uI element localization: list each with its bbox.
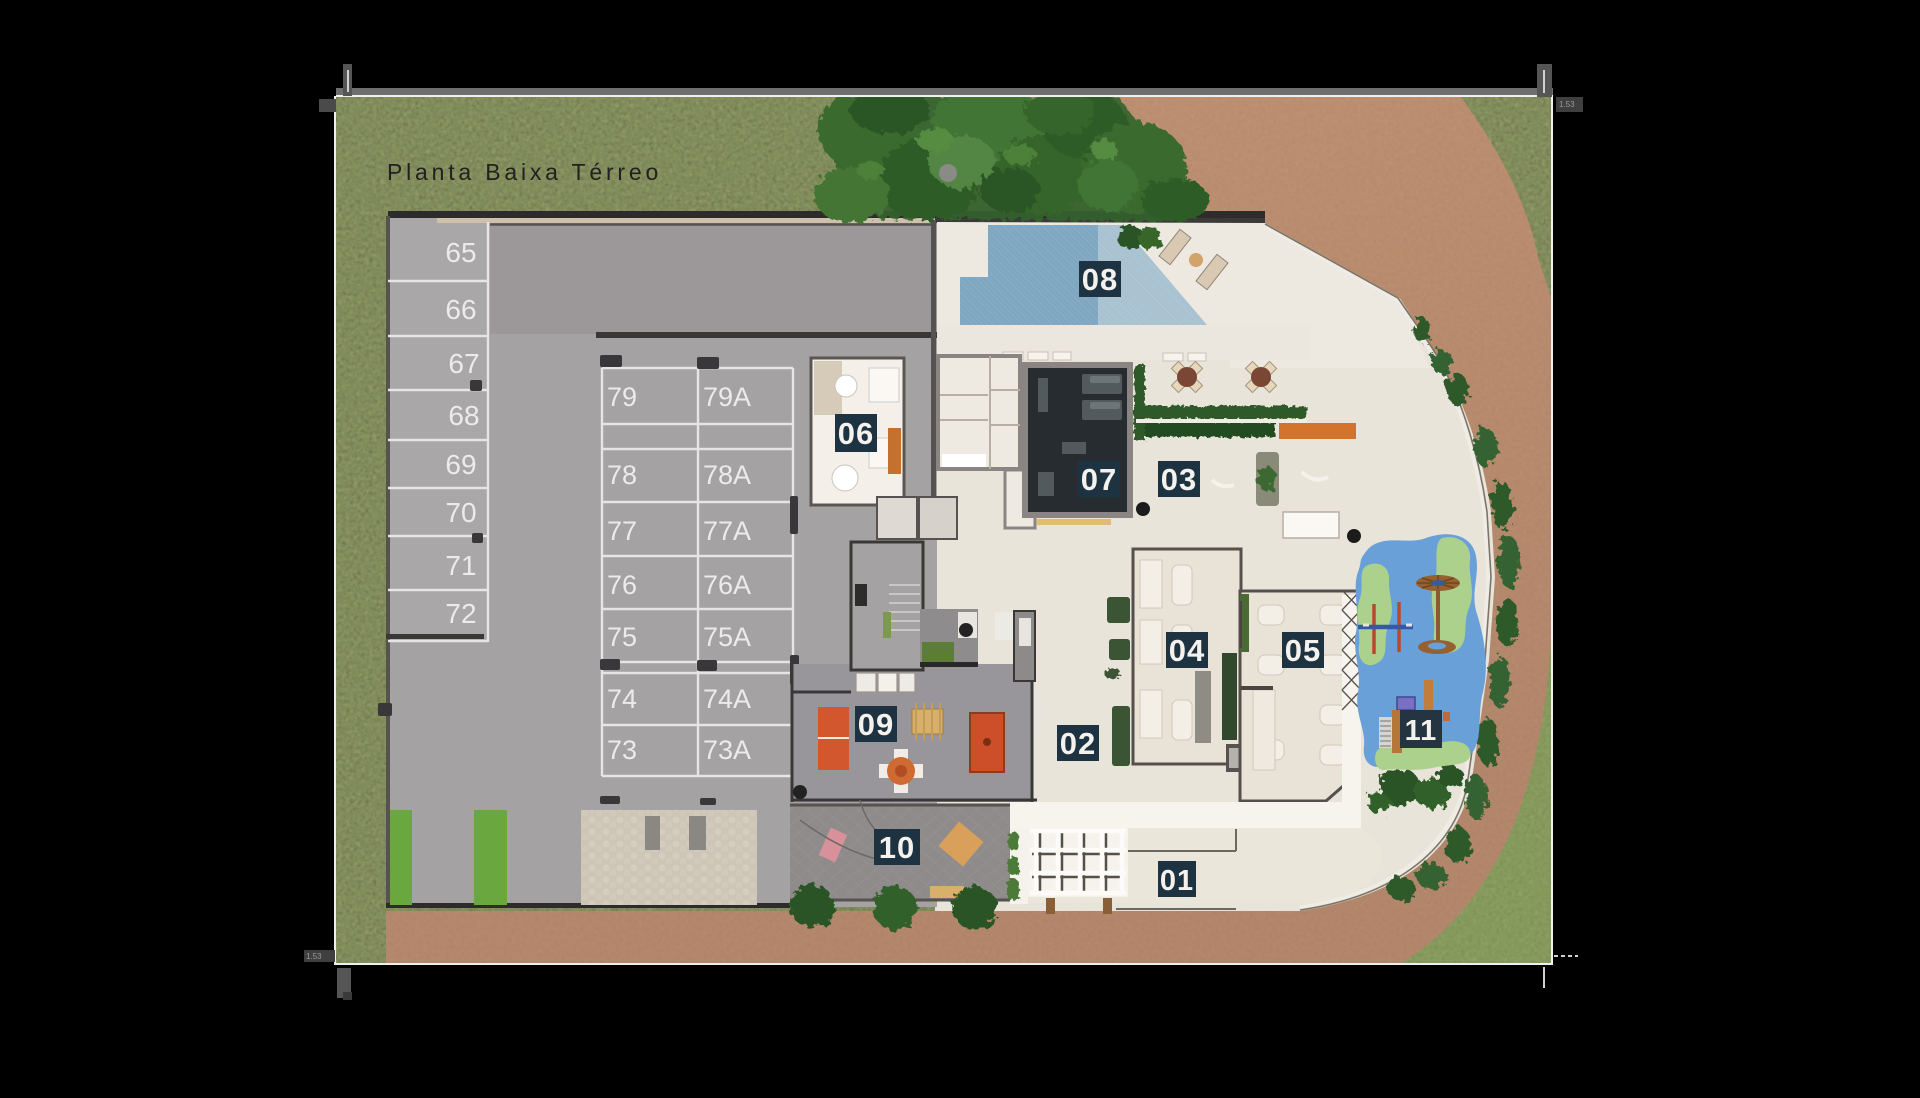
svg-text:69: 69 — [445, 449, 476, 480]
svg-text:67: 67 — [448, 348, 479, 379]
svg-text:73A: 73A — [703, 735, 751, 765]
svg-text:71: 71 — [445, 550, 476, 581]
svg-text:04: 04 — [1169, 633, 1205, 668]
svg-text:74A: 74A — [703, 684, 751, 714]
svg-text:03: 03 — [1161, 462, 1197, 497]
svg-text:77: 77 — [607, 516, 637, 546]
svg-text:1.53: 1.53 — [1559, 100, 1575, 109]
svg-text:75: 75 — [607, 622, 637, 652]
svg-text:65: 65 — [445, 237, 476, 268]
svg-text:76A: 76A — [703, 570, 751, 600]
svg-text:11: 11 — [1405, 715, 1438, 747]
svg-text:72: 72 — [445, 598, 476, 629]
svg-text:79A: 79A — [703, 382, 751, 412]
svg-text:78: 78 — [607, 460, 637, 490]
svg-text:76: 76 — [607, 570, 637, 600]
svg-text:01: 01 — [1160, 865, 1194, 897]
svg-text:09: 09 — [858, 707, 894, 742]
svg-text:Planta Baixa Térreo: Planta Baixa Térreo — [387, 159, 662, 185]
svg-text:02: 02 — [1060, 726, 1096, 761]
svg-text:74: 74 — [607, 684, 637, 714]
svg-text:79: 79 — [607, 382, 637, 412]
svg-text:08: 08 — [1082, 262, 1118, 297]
svg-text:66: 66 — [445, 294, 476, 325]
svg-text:75A: 75A — [703, 622, 751, 652]
svg-text:77A: 77A — [703, 516, 751, 546]
svg-text:1.53: 1.53 — [306, 952, 322, 961]
svg-text:05: 05 — [1285, 633, 1321, 668]
svg-text:06: 06 — [838, 416, 874, 451]
svg-text:70: 70 — [445, 497, 476, 528]
svg-text:78A: 78A — [703, 460, 751, 490]
svg-text:10: 10 — [879, 830, 915, 865]
svg-text:73: 73 — [607, 735, 637, 765]
svg-text:07: 07 — [1081, 462, 1117, 497]
svg-text:68: 68 — [448, 400, 479, 431]
